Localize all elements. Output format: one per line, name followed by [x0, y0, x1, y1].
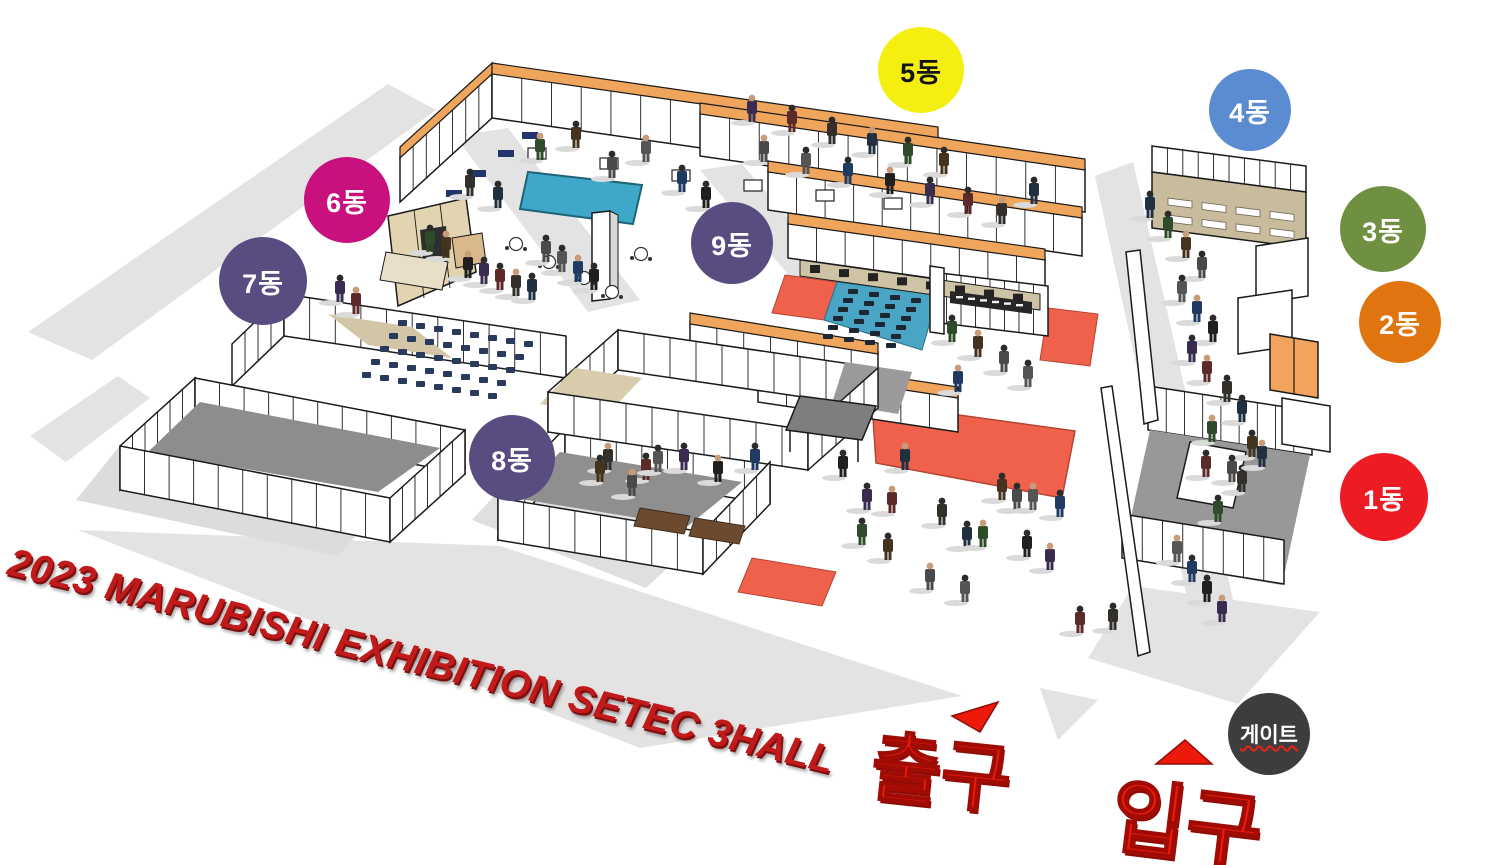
exit-label: 출구: [867, 705, 1018, 829]
zone-badge-zone-1: 1동: [1340, 453, 1428, 541]
gate-badge: 게이트: [1228, 693, 1310, 775]
zone-badge-zone-2: 2동: [1359, 281, 1441, 363]
zone-badge-zone-9: 9동: [691, 202, 773, 284]
zone-badge-zone-7: 7동: [219, 237, 307, 325]
zone-badge-zone-4: 4동: [1209, 69, 1291, 151]
zone-badge-zone-3: 3동: [1340, 186, 1426, 272]
exhibition-map: 1동2동3동4동5동6동7동8동9동 2023 MARUBISHI EXHIBI…: [0, 0, 1500, 865]
zone-badge-zone-5: 5동: [878, 27, 964, 113]
zone-badge-zone-8: 8동: [469, 415, 555, 501]
zone-badge-zone-6: 6동: [304, 157, 390, 243]
gate-label: 게이트: [1240, 719, 1298, 749]
